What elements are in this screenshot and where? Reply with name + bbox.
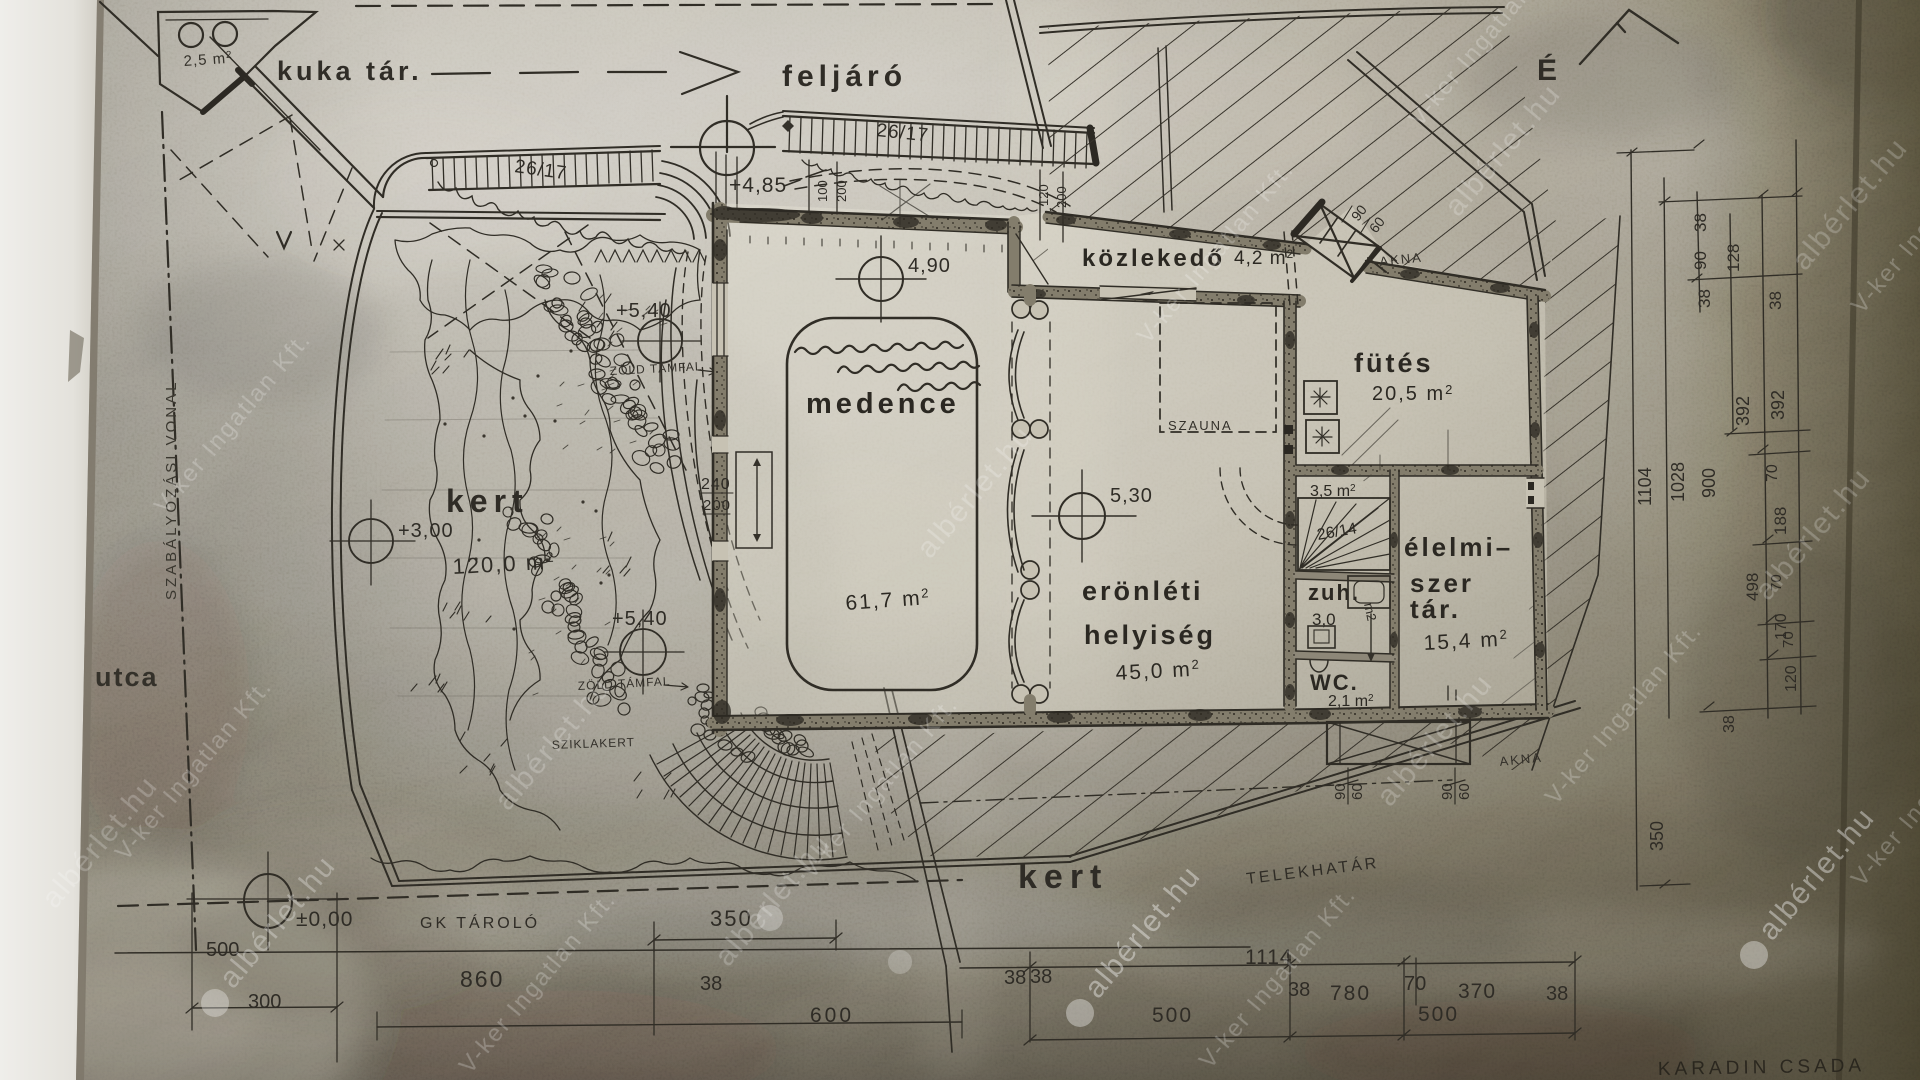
svg-text:3,5 m2: 3,5 m2 xyxy=(1310,483,1356,500)
svg-text:70: 70 xyxy=(1404,973,1426,995)
svg-text:188: 188 xyxy=(1771,507,1790,535)
svg-text:zuh.: zuh. xyxy=(1308,580,1360,605)
svg-text:70: 70 xyxy=(1764,464,1781,482)
svg-text:SZAUNA: SZAUNA xyxy=(1168,418,1233,433)
svg-text:38: 38 xyxy=(1546,983,1568,1005)
svg-text:utca: utca xyxy=(95,662,159,692)
svg-text:370: 370 xyxy=(1458,980,1496,1003)
svg-text:392: 392 xyxy=(1768,390,1788,420)
svg-text:38: 38 xyxy=(1766,291,1785,310)
svg-text:500: 500 xyxy=(1418,1003,1459,1026)
svg-text:medence: medence xyxy=(806,388,960,420)
svg-text:2,1 m2: 2,1 m2 xyxy=(1328,693,1374,710)
svg-text:20,5 m2: 20,5 m2 xyxy=(1372,382,1454,405)
svg-text:+5,40: +5,40 xyxy=(612,608,668,630)
svg-text:1104: 1104 xyxy=(1635,467,1655,506)
svg-text:+4,85: +4,85 xyxy=(729,174,787,197)
svg-text:élelmi–: élelmi– xyxy=(1404,532,1513,562)
svg-text:38: 38 xyxy=(1004,967,1026,989)
svg-text:kuka tár.: kuka tár. xyxy=(277,56,423,86)
svg-text:38: 38 xyxy=(1691,213,1710,232)
svg-text:780: 780 xyxy=(1330,982,1371,1005)
svg-text:60: 60 xyxy=(1456,783,1473,800)
svg-text:+5,40: +5,40 xyxy=(616,300,672,322)
svg-text:tár.: tár. xyxy=(1410,594,1461,624)
svg-text:KARADIN CSADA: KARADIN CSADA xyxy=(1658,1055,1866,1080)
svg-text:300: 300 xyxy=(248,991,281,1013)
svg-text:feljáró: feljáró xyxy=(782,60,907,93)
svg-text:GK TÁROLÓ: GK TÁROLÓ xyxy=(420,913,540,932)
svg-text:WC.: WC. xyxy=(1310,670,1359,695)
svg-text:38: 38 xyxy=(1721,715,1738,733)
svg-text:500: 500 xyxy=(1152,1004,1193,1027)
svg-text:38: 38 xyxy=(1030,966,1052,988)
svg-text:240: 240 xyxy=(701,476,731,493)
svg-text:1028: 1028 xyxy=(1668,462,1688,502)
svg-text:kert: kert xyxy=(1018,858,1108,896)
svg-text:350: 350 xyxy=(1647,821,1667,851)
svg-text:4,90: 4,90 xyxy=(908,255,951,277)
svg-text:100: 100 xyxy=(815,180,830,202)
svg-text:90: 90 xyxy=(1691,251,1710,270)
svg-text:15,4 m2: 15,4 m2 xyxy=(1423,627,1510,655)
svg-text:60: 60 xyxy=(1349,783,1366,800)
svg-text:600: 600 xyxy=(810,1004,854,1027)
svg-text:45,0 m2: 45,0 m2 xyxy=(1115,657,1202,685)
svg-text:120: 120 xyxy=(1783,665,1800,692)
svg-text:860: 860 xyxy=(460,966,504,992)
svg-text:fütés: fütés xyxy=(1354,348,1434,378)
svg-text:+3,00: +3,00 xyxy=(398,520,454,542)
svg-text:70: 70 xyxy=(1780,631,1797,648)
svg-text:200: 200 xyxy=(703,497,731,514)
svg-text:392: 392 xyxy=(1733,396,1753,426)
svg-text:38: 38 xyxy=(1695,289,1714,308)
svg-text:kert: kert xyxy=(446,483,529,519)
svg-text:erönléti: erönléti xyxy=(1082,576,1204,606)
svg-text:128: 128 xyxy=(1724,244,1743,272)
svg-text:helyiség: helyiség xyxy=(1084,620,1216,650)
svg-text:5,30: 5,30 xyxy=(1110,485,1153,507)
svg-text:38: 38 xyxy=(700,973,722,995)
svg-text:900: 900 xyxy=(1699,468,1719,498)
